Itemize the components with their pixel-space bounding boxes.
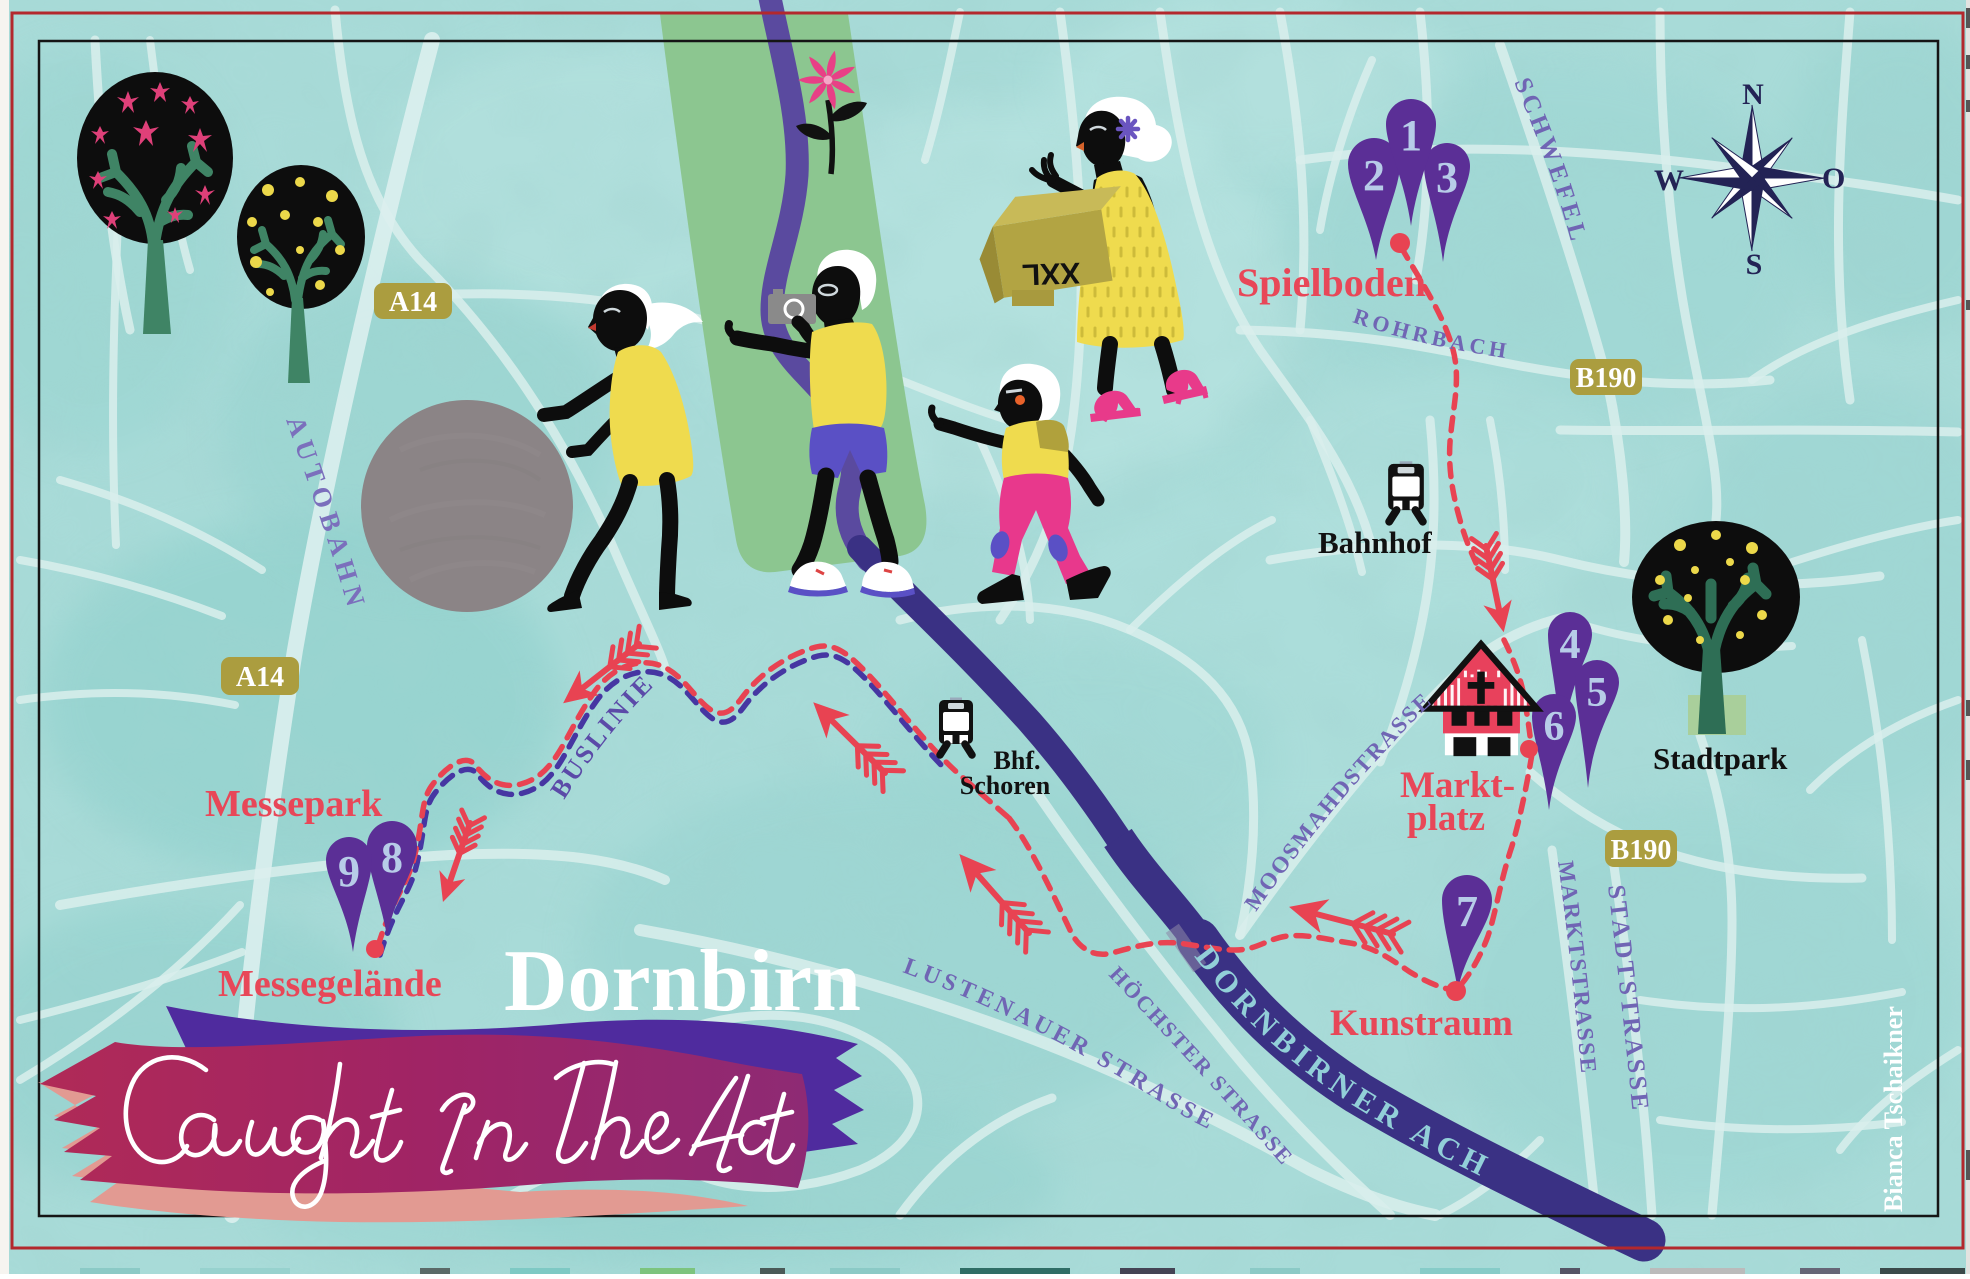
svg-text:8: 8 (381, 833, 403, 882)
svg-text:5: 5 (1587, 670, 1608, 716)
svg-text:3: 3 (1436, 153, 1458, 202)
svg-text:7: 7 (1456, 887, 1478, 936)
svg-text:platz: platz (1407, 798, 1485, 839)
svg-text:Bianca Tschaikner: Bianca Tschaikner (1879, 1006, 1908, 1212)
svg-text:Messegelände: Messegelände (218, 963, 442, 1005)
svg-text:A14: A14 (236, 662, 284, 693)
svg-text:O: O (1822, 162, 1845, 195)
svg-text:A14: A14 (389, 287, 437, 318)
svg-text:Kunstraum: Kunstraum (1330, 1003, 1513, 1044)
svg-text:9: 9 (338, 847, 360, 896)
svg-text:Messepark: Messepark (205, 783, 383, 825)
svg-text:Spielboden: Spielboden (1237, 260, 1426, 305)
svg-text:2: 2 (1363, 151, 1385, 200)
svg-text:B190: B190 (1611, 835, 1672, 866)
svg-text:4: 4 (1560, 622, 1581, 668)
svg-text:Bahnhof: Bahnhof (1318, 525, 1432, 560)
svg-text:Stadtpark: Stadtpark (1653, 741, 1788, 776)
svg-text:Dornbirn: Dornbirn (504, 933, 861, 1030)
svg-text:W: W (1654, 164, 1684, 197)
svg-text:Schoren: Schoren (960, 771, 1051, 800)
svg-text:1: 1 (1400, 111, 1422, 160)
svg-text:N: N (1742, 78, 1764, 111)
svg-text:S: S (1746, 248, 1763, 281)
svg-text:XXL: XXL (1021, 256, 1080, 291)
svg-text:B190: B190 (1576, 363, 1637, 394)
svg-text:6: 6 (1544, 704, 1565, 750)
